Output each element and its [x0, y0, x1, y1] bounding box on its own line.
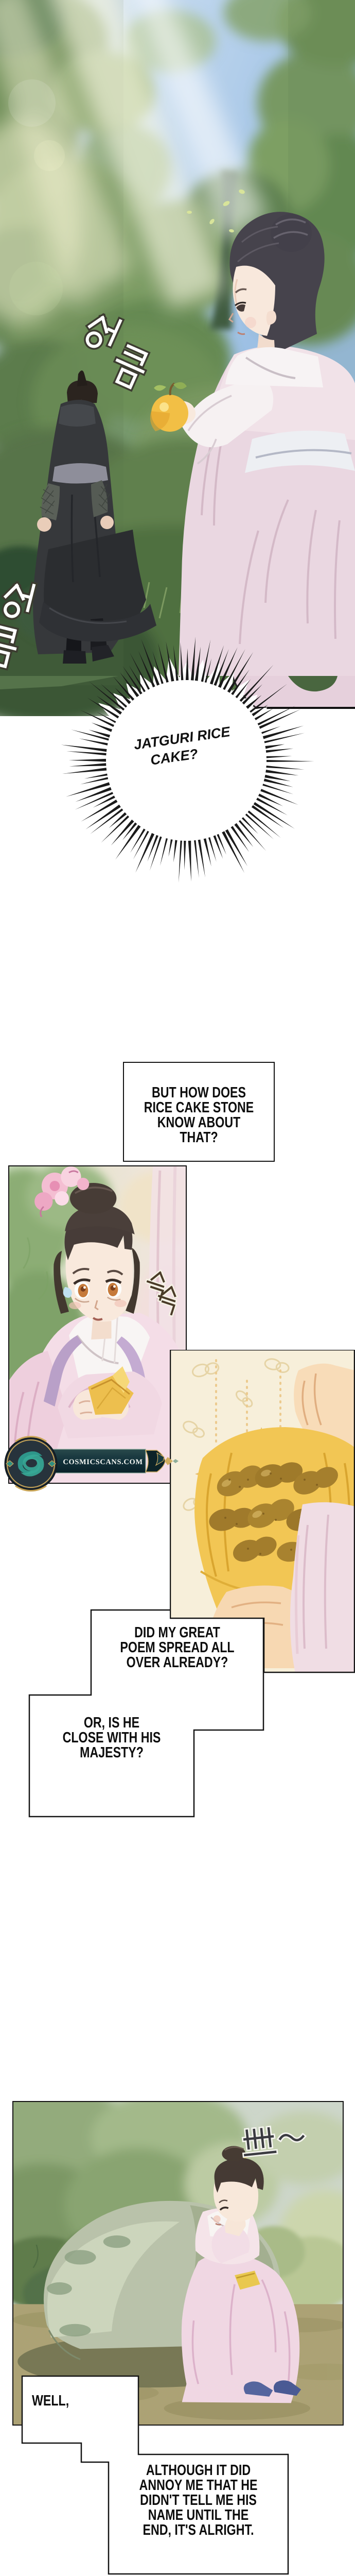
svg-text:COSMICSCANS.COM: COSMICSCANS.COM — [63, 1458, 143, 1466]
